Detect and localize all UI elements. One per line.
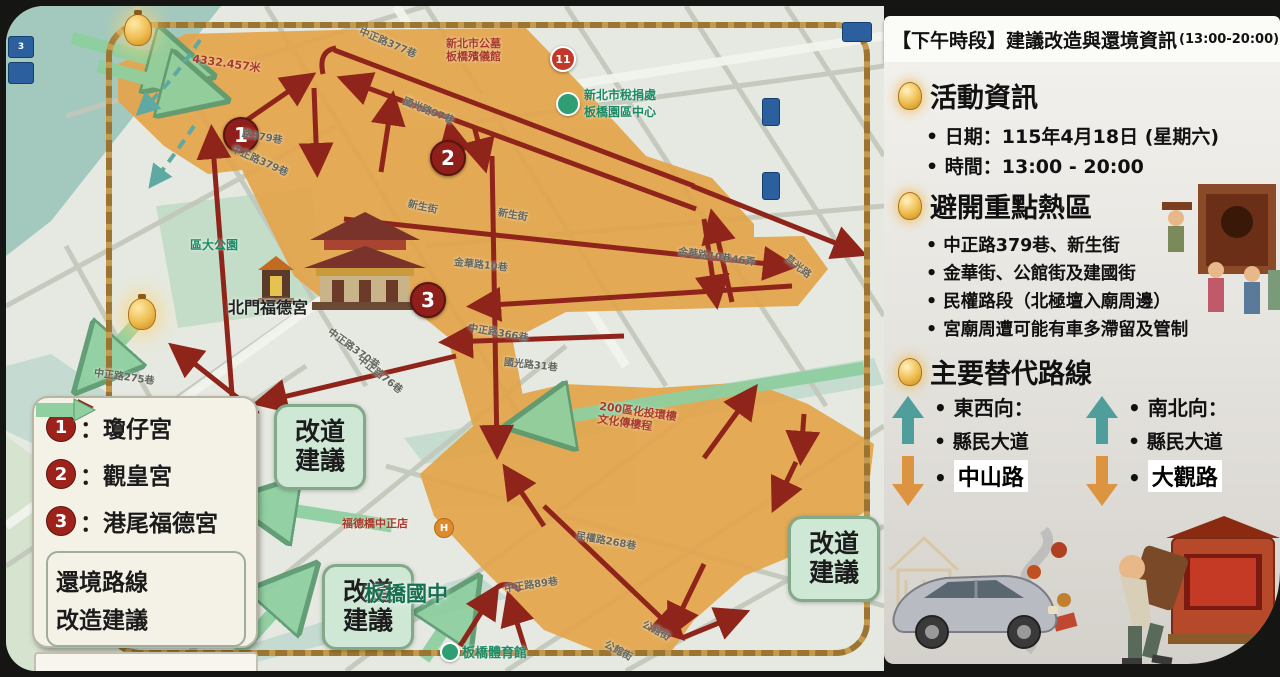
lantern-icon [898, 192, 922, 220]
gym-icon [440, 642, 460, 662]
temple-crowd-illustration [1160, 174, 1280, 324]
map-pin-11: 11 [550, 46, 576, 72]
section-event-info: 活動資訊 [898, 76, 1038, 115]
legend-num-2: 2 [46, 459, 76, 489]
event-time: 時間：13:00 - 20:00 [926, 152, 1144, 179]
landmark-park: 區大公園 [190, 236, 238, 253]
legend-footer-box [34, 652, 258, 671]
landmark-funeral: 新北市公墓板橋殯儀館 [446, 38, 501, 63]
highlight-route: 中山路 [954, 460, 1028, 492]
hot-zone-item: 中正路379巷、新生街 [926, 232, 1120, 257]
section-alt-routes: 主要替代路線 [898, 352, 1092, 391]
detour-arrow-icon [34, 398, 96, 422]
palanquin-icon [1166, 516, 1280, 644]
lantern-icon [124, 14, 152, 46]
legend-item: 3 ：港尾福德宮 [46, 504, 246, 538]
road-shield: 3 [8, 36, 34, 58]
section-hot-zones: 避開重點熱區 [898, 186, 1092, 225]
info-sidebar: 【下午時段】建議改造與還境資訊(13:00-20:00) 活動資訊 日期：115… [884, 16, 1280, 664]
car-icon [893, 576, 1058, 648]
header-title: 建議改造與還境資訊 [1006, 26, 1177, 53]
marker-3: 3 [410, 282, 446, 318]
sidebar-header: 【下午時段】建議改造與還境資訊(13:00-20:00) [884, 16, 1280, 62]
header-time: (13:00-20:00) [1179, 32, 1279, 47]
road-shield [8, 62, 34, 84]
road-shield [762, 98, 780, 126]
header-bracket: 【下午時段】 [892, 26, 1006, 53]
landmark-gym: 板橋體育館 [462, 642, 527, 661]
landmark-north-gate-temple: 北門福德宮 [228, 294, 308, 318]
alt-route-col-northsouth: 南北向： 縣民大道 大觀路 [1084, 392, 1274, 492]
legend-arrow-key: 還境路線 改造建議 [46, 551, 246, 647]
legend-item: 2 ：觀皇宮 [46, 457, 246, 491]
landmark-tax-office: 新北市稅捐處板橋園區中心 [584, 86, 656, 120]
up-down-arrows-icon [890, 396, 926, 506]
hot-zone-item: 金華街、公館街及建國街 [926, 260, 1136, 285]
store-pin: H [434, 518, 454, 538]
sidebar-body: 活動資訊 日期：115年4月18日 (星期六) 時間：13:00 - 20:00… [884, 62, 1280, 664]
lantern-icon [898, 358, 922, 386]
lantern-icon [898, 82, 922, 110]
hot-zone-item: 宮廟周遭可能有車多滯留及管制 [926, 316, 1188, 341]
road-shield [842, 22, 872, 42]
alt-route-col-eastwest: 東西向： 縣民大道 中山路 [890, 392, 1080, 492]
up-down-arrows-icon [1084, 396, 1120, 506]
map-area: 1 2 3 改道建議 改道建議 改道建議 4332.457米 中正路377巷 國… [6, 6, 884, 671]
event-date: 日期：115年4月18日 (星期六) [926, 122, 1219, 149]
highlight-route: 大觀路 [1148, 460, 1222, 492]
tax-office-icon [556, 92, 580, 116]
road-shield [762, 172, 780, 200]
marker-2: 2 [430, 140, 466, 176]
landmark-school: 板橋國中 [364, 578, 448, 608]
lantern-icon [128, 298, 156, 330]
landmark-store: 福德橋中正店 [342, 518, 408, 531]
detour-box: 改道建議 [274, 404, 366, 490]
main-temple-illustration [302, 206, 428, 310]
infographic-root: 1 2 3 改道建議 改道建議 改道建議 4332.457米 中正路377巷 國… [0, 0, 1280, 677]
detour-box: 改道建議 [788, 516, 880, 602]
hot-zone-item: 民權路段（北極壇入廟周邊） [926, 288, 1171, 313]
car-palanquin-illustration [884, 510, 1280, 664]
map-legend: 1 ：瓊仔宮 2 ：觀皇宮 3 ：港尾福德宮 還境路線 [32, 396, 258, 648]
legend-num-3: 3 [46, 506, 76, 536]
